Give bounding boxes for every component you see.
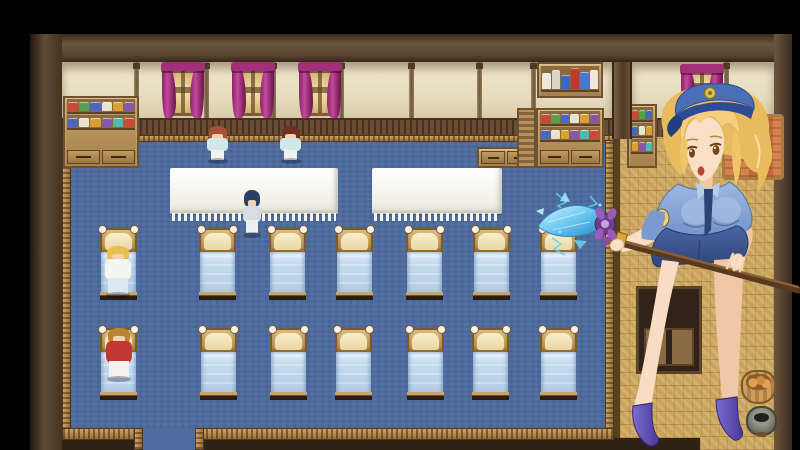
ice-spark-1 bbox=[565, 199, 568, 202]
bust-highlight-right bbox=[711, 197, 741, 223]
leg-right bbox=[714, 258, 744, 398]
ice-crystal-tip bbox=[536, 208, 544, 215]
character-portrait[interactable] bbox=[0, 0, 800, 450]
eye-right bbox=[713, 145, 720, 155]
heel-left[interactable] bbox=[633, 403, 659, 446]
leg-left bbox=[633, 260, 679, 414]
guard-core bbox=[601, 220, 609, 228]
eye-left bbox=[689, 148, 695, 157]
game-viewport bbox=[0, 0, 800, 450]
ice-blade bbox=[539, 206, 602, 237]
heel-right[interactable] bbox=[716, 397, 743, 440]
eye-glint-right bbox=[714, 147, 716, 149]
eye-glint-left bbox=[690, 150, 692, 152]
ice-spark-2 bbox=[599, 204, 602, 207]
ice-spark-3 bbox=[559, 231, 562, 234]
open-mouth bbox=[698, 166, 705, 175]
cap-badge-core bbox=[708, 91, 712, 95]
ice-crystal-bottom bbox=[574, 240, 587, 249]
